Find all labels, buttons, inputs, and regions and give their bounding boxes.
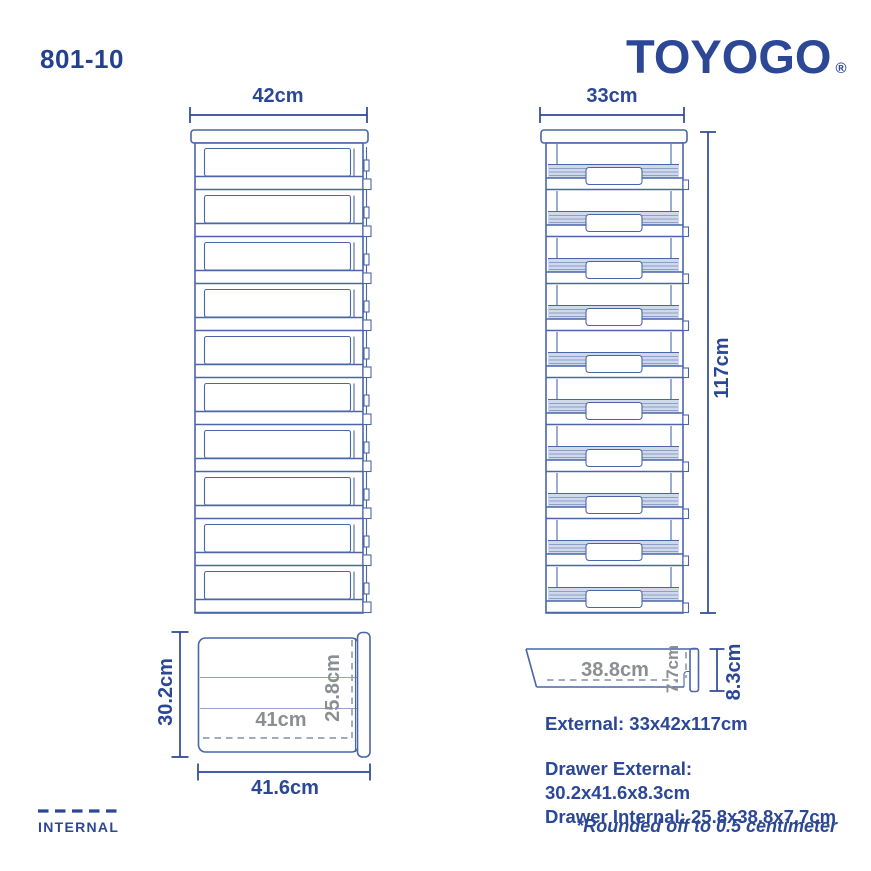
spec-sheet: 801-10 TOYOGO ® 42cm 33cm 117cm 30.2cm 2… — [0, 0, 871, 871]
specs-block: External: 33x42x117cm Drawer External: 3… — [545, 712, 837, 829]
drawer-external-height-label: 8.3cm — [722, 622, 746, 722]
brand-logo: TOYOGO ® — [626, 33, 847, 80]
drawer-external-depth-label: 30.2cm — [154, 642, 178, 742]
internal-legend-label: INTERNAL — [38, 819, 119, 835]
side-depth-label: 33cm — [562, 84, 662, 108]
front-width-label: 42cm — [228, 84, 328, 108]
brand-name: TOYOGO — [626, 33, 831, 80]
side-view-drawing — [540, 107, 716, 613]
drawer-internal-length-label: 38.8cm — [565, 658, 665, 682]
front-view-drawing — [190, 107, 371, 613]
external-dimensions-text: External: 33x42x117cm — [545, 712, 837, 736]
model-number: 801-10 — [40, 44, 124, 75]
drawer-external-dimensions-text: Drawer External: 30.2x41.6x8.3cm — [545, 757, 837, 805]
drawer-internal-width-label: 41cm — [231, 708, 331, 732]
height-label: 117cm — [710, 318, 734, 418]
drawer-internal-height-label: 7.7cm — [661, 619, 685, 719]
front-width-dimension-line — [190, 107, 367, 123]
rounding-footnote: *Rounded off to 0.5 centimeter — [545, 816, 837, 837]
drawer-external-width-label: 41.6cm — [235, 776, 335, 800]
side-depth-dimension-line — [540, 107, 684, 123]
registered-trademark-icon: ® — [835, 60, 846, 77]
